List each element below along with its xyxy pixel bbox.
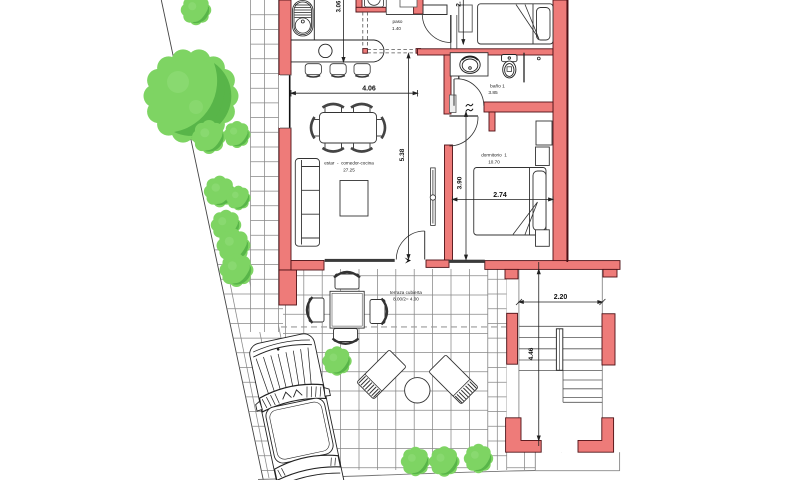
svg-text:estar - comedor-cocina: estar - comedor-cocina: [324, 161, 374, 166]
svg-text:10.70: 10.70: [488, 160, 500, 165]
svg-text:4.06: 4.06: [362, 86, 376, 93]
svg-text:5.38: 5.38: [399, 148, 406, 161]
svg-text:3.06: 3.06: [337, 0, 343, 12]
svg-text:2.74: 2.74: [493, 192, 507, 199]
svg-text:27.25: 27.25: [343, 168, 355, 173]
svg-text:baño 1: baño 1: [490, 84, 505, 90]
svg-text:4.46: 4.46: [528, 347, 535, 360]
svg-text:1.40: 1.40: [392, 26, 401, 31]
svg-text:2.20: 2.20: [554, 294, 568, 301]
svg-text:paso: paso: [393, 19, 403, 24]
svg-text:8.00/2= 4.00: 8.00/2= 4.00: [393, 297, 419, 302]
svg-text:terraza cubierta: terraza cubierta: [390, 290, 422, 295]
svg-text:dormitorio 1: dormitorio 1: [481, 153, 507, 158]
svg-text:3.85: 3.85: [488, 90, 498, 96]
svg-text:3.90: 3.90: [457, 176, 464, 189]
svg-text:2.: 2.: [456, 1, 463, 7]
